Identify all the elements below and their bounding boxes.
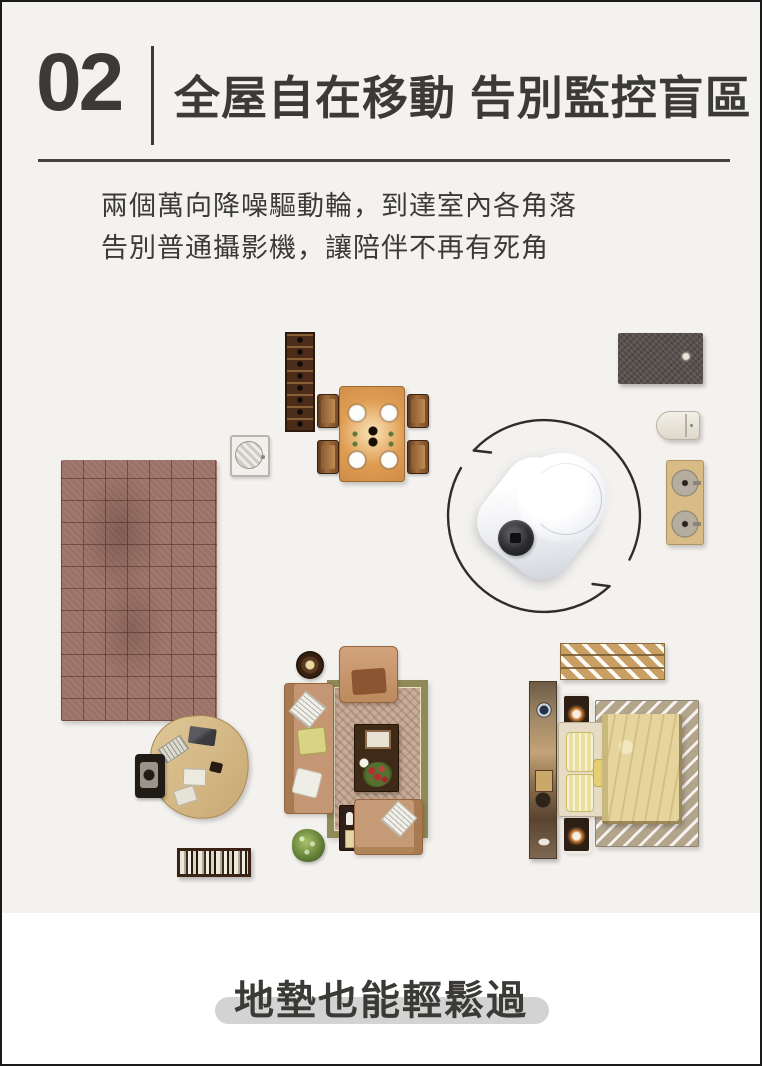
laptop-icon: [188, 726, 217, 747]
desk-item-icon: [209, 761, 223, 774]
floorplan-illustration: [2, 2, 760, 1064]
dining-chair-icon: [317, 440, 339, 474]
armchair-icon: [339, 646, 398, 703]
dining-chair-icon: [407, 394, 429, 428]
paper-icon: [173, 785, 198, 807]
robot-camera: [472, 445, 622, 595]
dining-table-icon: [339, 386, 405, 482]
air-vent-icon: [230, 435, 270, 477]
round-table-icon: [296, 651, 324, 679]
pillow-icon: [566, 732, 594, 772]
double-sink-icon: [666, 460, 704, 545]
tiled-rug-icon: [61, 460, 217, 721]
wardrobe-icon: [529, 681, 557, 859]
nightstand-icon: [564, 818, 589, 851]
toilet-icon: [656, 411, 700, 440]
bookshelf-icon: [177, 848, 251, 877]
coffee-table-icon: [354, 724, 399, 792]
dining-chair-icon: [407, 440, 429, 474]
promo-page: 02 全屋自在移動 告別監控盲區 兩個萬向降噪驅動輪，到達室內各角落 告別普通攝…: [0, 0, 762, 1066]
loveseat-icon: [354, 799, 423, 855]
pillow-icon: [566, 774, 594, 812]
pillow-icon: [291, 767, 323, 799]
duvet-icon: [602, 714, 682, 824]
drying-rack-icon: [560, 643, 665, 680]
plant-icon: [292, 829, 325, 862]
wine-rack-icon: [285, 332, 315, 432]
robot-camera-lens-icon: [498, 520, 534, 556]
footer-headline: 地墊也能輕鬆過: [2, 968, 760, 1026]
paper-icon: [183, 768, 207, 786]
bath-mat-icon: [618, 333, 703, 384]
desk-chair-icon: [135, 754, 165, 798]
pillow-icon: [288, 690, 326, 728]
sofa-icon: [284, 683, 334, 814]
dining-chair-icon: [317, 394, 339, 428]
pillow-icon: [297, 727, 328, 756]
